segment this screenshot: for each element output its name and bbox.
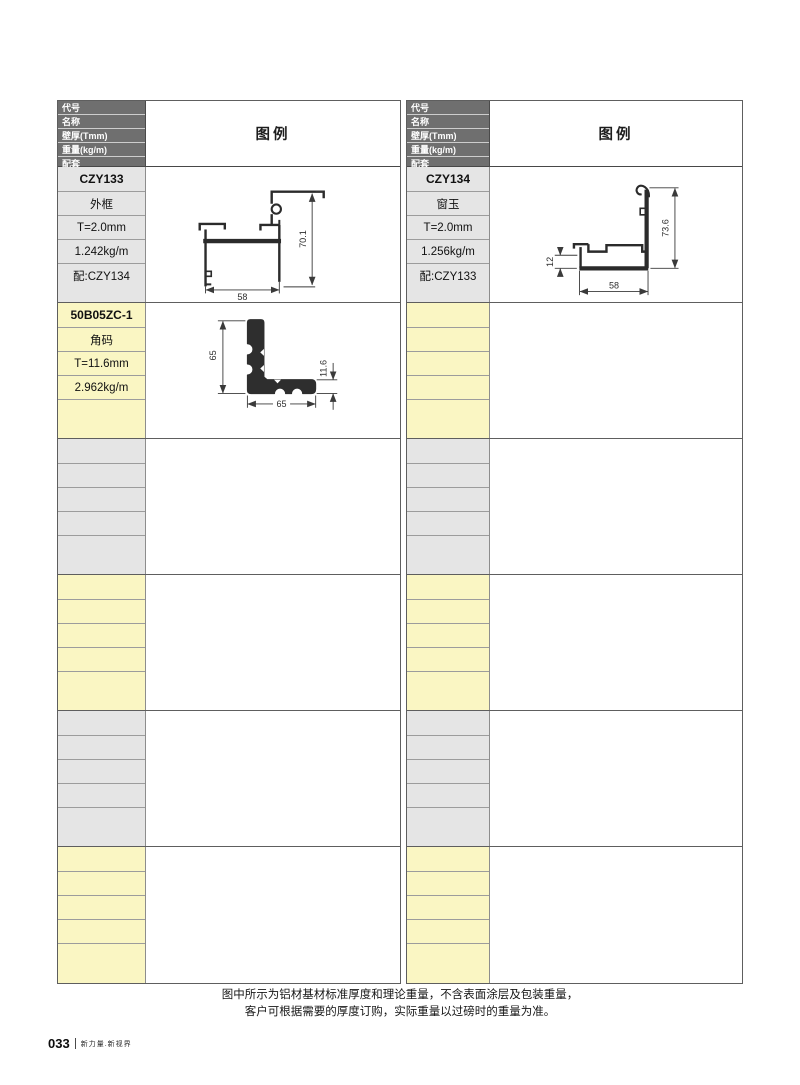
field-weight (407, 376, 489, 400)
field-code (58, 847, 145, 872)
field-name (407, 464, 489, 488)
table-header: 代号名称壁厚(Tmm)重量(kg/m)配套图例 (407, 101, 742, 167)
profile-diagram-czy134: 125873.6 (490, 167, 742, 302)
group-label-column: 50B05ZC-1角码T=11.6mm2.962kg/m (58, 303, 146, 438)
field-thickness: T=2.0mm (407, 216, 489, 240)
header-field-labels: 代号名称壁厚(Tmm)重量(kg/m)配套 (58, 101, 146, 166)
catalog-page: 代号名称壁厚(Tmm)重量(kg/m)配套图例CZY133外框T=2.0mm1.… (0, 0, 800, 1085)
group-label-column (58, 575, 146, 710)
header-field-label: 名称 (58, 115, 145, 129)
field-match (58, 400, 145, 438)
field-weight: 2.962kg/m (58, 376, 145, 400)
field-code: CZY133 (58, 167, 145, 192)
diagram-czy133: 70.158 (146, 167, 400, 302)
diagram-empty (490, 847, 742, 983)
dimension-label: 65 (208, 350, 218, 360)
field-name (58, 872, 145, 896)
group-label-column (407, 711, 490, 846)
field-weight (58, 784, 145, 808)
field-weight (58, 648, 145, 672)
footer-divider (75, 1038, 76, 1049)
field-thickness (58, 488, 145, 512)
field-name (58, 736, 145, 760)
field-code (407, 439, 489, 464)
field-name (58, 600, 145, 624)
diagram-empty (146, 575, 400, 710)
dimension-label: 58 (237, 292, 247, 302)
field-match (58, 536, 145, 574)
table-header: 代号名称壁厚(Tmm)重量(kg/m)配套图例 (58, 101, 400, 167)
diagram-empty (146, 439, 400, 574)
field-name (407, 328, 489, 352)
field-weight (58, 512, 145, 536)
field-weight (407, 648, 489, 672)
field-match (407, 672, 489, 710)
field-thickness (407, 624, 489, 648)
group-label-column (58, 711, 146, 846)
profile-table-right: 代号名称壁厚(Tmm)重量(kg/m)配套图例CZY134窗玉T=2.0mm1.… (406, 100, 743, 984)
field-code (58, 575, 145, 600)
field-thickness (58, 896, 145, 920)
header-field-label: 代号 (58, 101, 145, 115)
header-field-label: 代号 (407, 101, 489, 115)
header-field-label: 壁厚(Tmm) (407, 129, 489, 143)
field-match (58, 808, 145, 846)
field-thickness (407, 488, 489, 512)
field-weight (407, 512, 489, 536)
diagram-empty (490, 303, 742, 438)
group-label-column (407, 847, 490, 983)
profile-group-empty (407, 711, 742, 847)
field-code (58, 711, 145, 736)
profile-group-CZY134: CZY134窗玉T=2.0mm1.256kg/m配:CZY133125873.6 (407, 167, 742, 303)
group-label-column: CZY134窗玉T=2.0mm1.256kg/m配:CZY133 (407, 167, 490, 302)
header-field-label: 名称 (407, 115, 489, 129)
page-footer: 033 新力量.新视界 (48, 1036, 132, 1051)
profile-group-empty (407, 303, 742, 439)
field-name: 角码 (58, 328, 145, 352)
header-field-label: 壁厚(Tmm) (58, 129, 145, 143)
field-code (407, 847, 489, 872)
field-thickness (407, 760, 489, 784)
profile-group-empty (58, 711, 400, 847)
field-thickness: T=2.0mm (58, 216, 145, 240)
profile-diagram-czy133: 70.158 (146, 167, 400, 302)
profile-group-empty (407, 575, 742, 711)
dimension-label: 65 (277, 399, 287, 409)
dimension-label: 11.6 (318, 360, 328, 377)
page-number: 033 (48, 1036, 70, 1051)
legend-header: 图例 (146, 101, 400, 166)
field-weight: 1.256kg/m (407, 240, 489, 264)
dimension-label: 58 (609, 281, 619, 291)
dimension-label: 12 (545, 257, 555, 267)
footer-slogan: 新力量.新视界 (81, 1039, 132, 1049)
header-field-label: 重量(kg/m) (58, 143, 145, 157)
diagram-empty (490, 711, 742, 846)
profile-group-empty (407, 439, 742, 575)
profile-diagram-bracket: 656511.6 (146, 303, 400, 438)
group-label-column (407, 575, 490, 710)
field-name: 外框 (58, 192, 145, 216)
dimension-label: 70.1 (298, 230, 308, 248)
field-name: 窗玉 (407, 192, 489, 216)
profile-group-empty (58, 575, 400, 711)
group-label-column (58, 847, 146, 983)
group-label-column (407, 439, 490, 574)
dimension-label: 73.6 (660, 219, 670, 237)
diagram-czy134: 125873.6 (490, 167, 742, 302)
field-name (407, 600, 489, 624)
field-weight (407, 784, 489, 808)
field-name (58, 464, 145, 488)
group-label-column (407, 303, 490, 438)
field-thickness (58, 624, 145, 648)
field-match (407, 944, 489, 983)
field-code (407, 575, 489, 600)
field-code: CZY134 (407, 167, 489, 192)
field-weight (407, 920, 489, 944)
field-match (58, 944, 145, 983)
field-match (407, 400, 489, 438)
field-thickness: T=11.6mm (58, 352, 145, 376)
diagram-empty (146, 847, 400, 983)
footnote-line-1: 图中所示为铝材基材标准厚度和理论重量，不含表面涂层及包装重量， (0, 987, 800, 1004)
diagram-empty (490, 575, 742, 710)
profile-group-50B05ZC-1: 50B05ZC-1角码T=11.6mm2.962kg/m656511.6 (58, 303, 400, 439)
footnote: 图中所示为铝材基材标准厚度和理论重量，不含表面涂层及包装重量， 客户可根据需要的… (0, 987, 800, 1021)
field-code (407, 711, 489, 736)
group-label-column (58, 439, 146, 574)
field-match: 配:CZY133 (407, 264, 489, 302)
field-thickness (407, 896, 489, 920)
profile-group-empty (58, 847, 400, 983)
field-code: 50B05ZC-1 (58, 303, 145, 328)
field-weight: 1.242kg/m (58, 240, 145, 264)
field-thickness (407, 352, 489, 376)
field-match (407, 808, 489, 846)
group-label-column: CZY133外框T=2.0mm1.242kg/m配:CZY134 (58, 167, 146, 302)
diagram-empty (146, 711, 400, 846)
field-code (58, 439, 145, 464)
field-thickness (58, 760, 145, 784)
header-field-label: 重量(kg/m) (407, 143, 489, 157)
field-name (407, 736, 489, 760)
field-name (407, 872, 489, 896)
legend-header: 图例 (490, 101, 742, 166)
diagram-empty (490, 439, 742, 574)
profile-group-CZY133: CZY133外框T=2.0mm1.242kg/m配:CZY13470.158 (58, 167, 400, 303)
header-field-labels: 代号名称壁厚(Tmm)重量(kg/m)配套 (407, 101, 490, 166)
field-match (58, 672, 145, 710)
field-weight (58, 920, 145, 944)
diagram-bracket: 656511.6 (146, 303, 400, 438)
footnote-line-2: 客户可根据需要的厚度订购，实际重量以过磅时的重量为准。 (0, 1004, 800, 1021)
profile-group-empty (58, 439, 400, 575)
field-match: 配:CZY134 (58, 264, 145, 302)
field-code (407, 303, 489, 328)
field-match (407, 536, 489, 574)
profile-group-empty (407, 847, 742, 983)
profile-table-left: 代号名称壁厚(Tmm)重量(kg/m)配套图例CZY133外框T=2.0mm1.… (57, 100, 401, 984)
